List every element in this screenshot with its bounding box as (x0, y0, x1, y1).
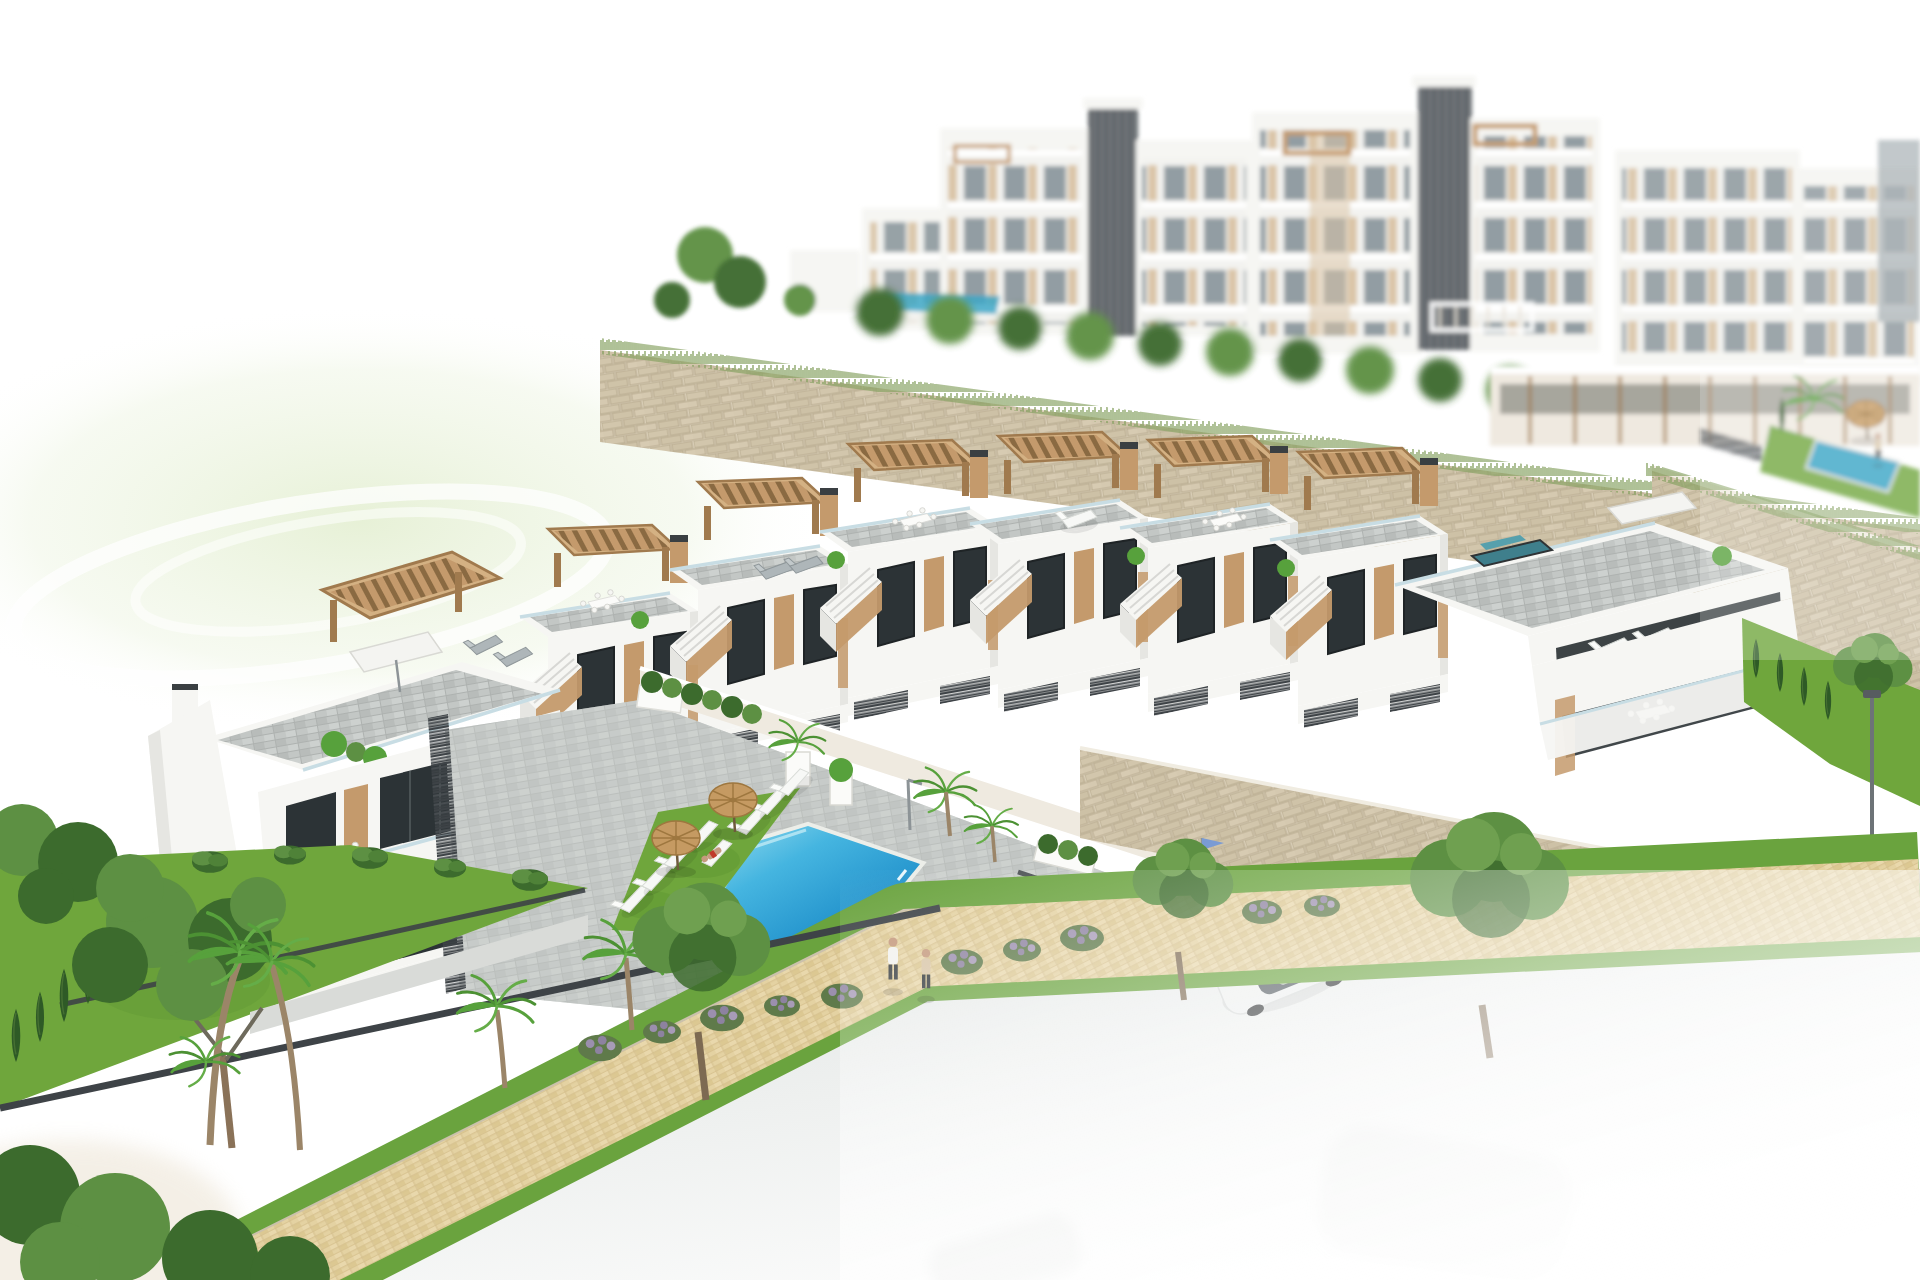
roof-plant (1127, 547, 1145, 565)
roof-plant (827, 551, 845, 569)
bg-lift-shaft-a-cap (1083, 98, 1143, 109)
right-depth-haze (1700, 360, 1920, 660)
bg-lift-shaft-a (1088, 106, 1138, 336)
roof-plant (631, 611, 649, 629)
roof-plant (1277, 559, 1295, 577)
bg-lift-shaft-b (1418, 84, 1472, 350)
straw-parasol-icon (652, 821, 700, 878)
architectural-render: Photorealistic architect's render: a dia… (0, 0, 1920, 1280)
render-canvas: Photorealistic architect's render: a dia… (0, 0, 1920, 1280)
bg-lift-shaft-b-cap (1412, 76, 1476, 87)
bg-glass-sliver (1878, 140, 1920, 322)
straw-parasol-icon (709, 783, 757, 840)
bg-tower-b1-beige-column (1310, 130, 1350, 336)
bottom-right-haze (840, 870, 1920, 1280)
top-haze (0, 0, 1920, 70)
bg-tower-a2-windows (1142, 158, 1246, 326)
bg-block-c1-windows (1622, 168, 1792, 352)
